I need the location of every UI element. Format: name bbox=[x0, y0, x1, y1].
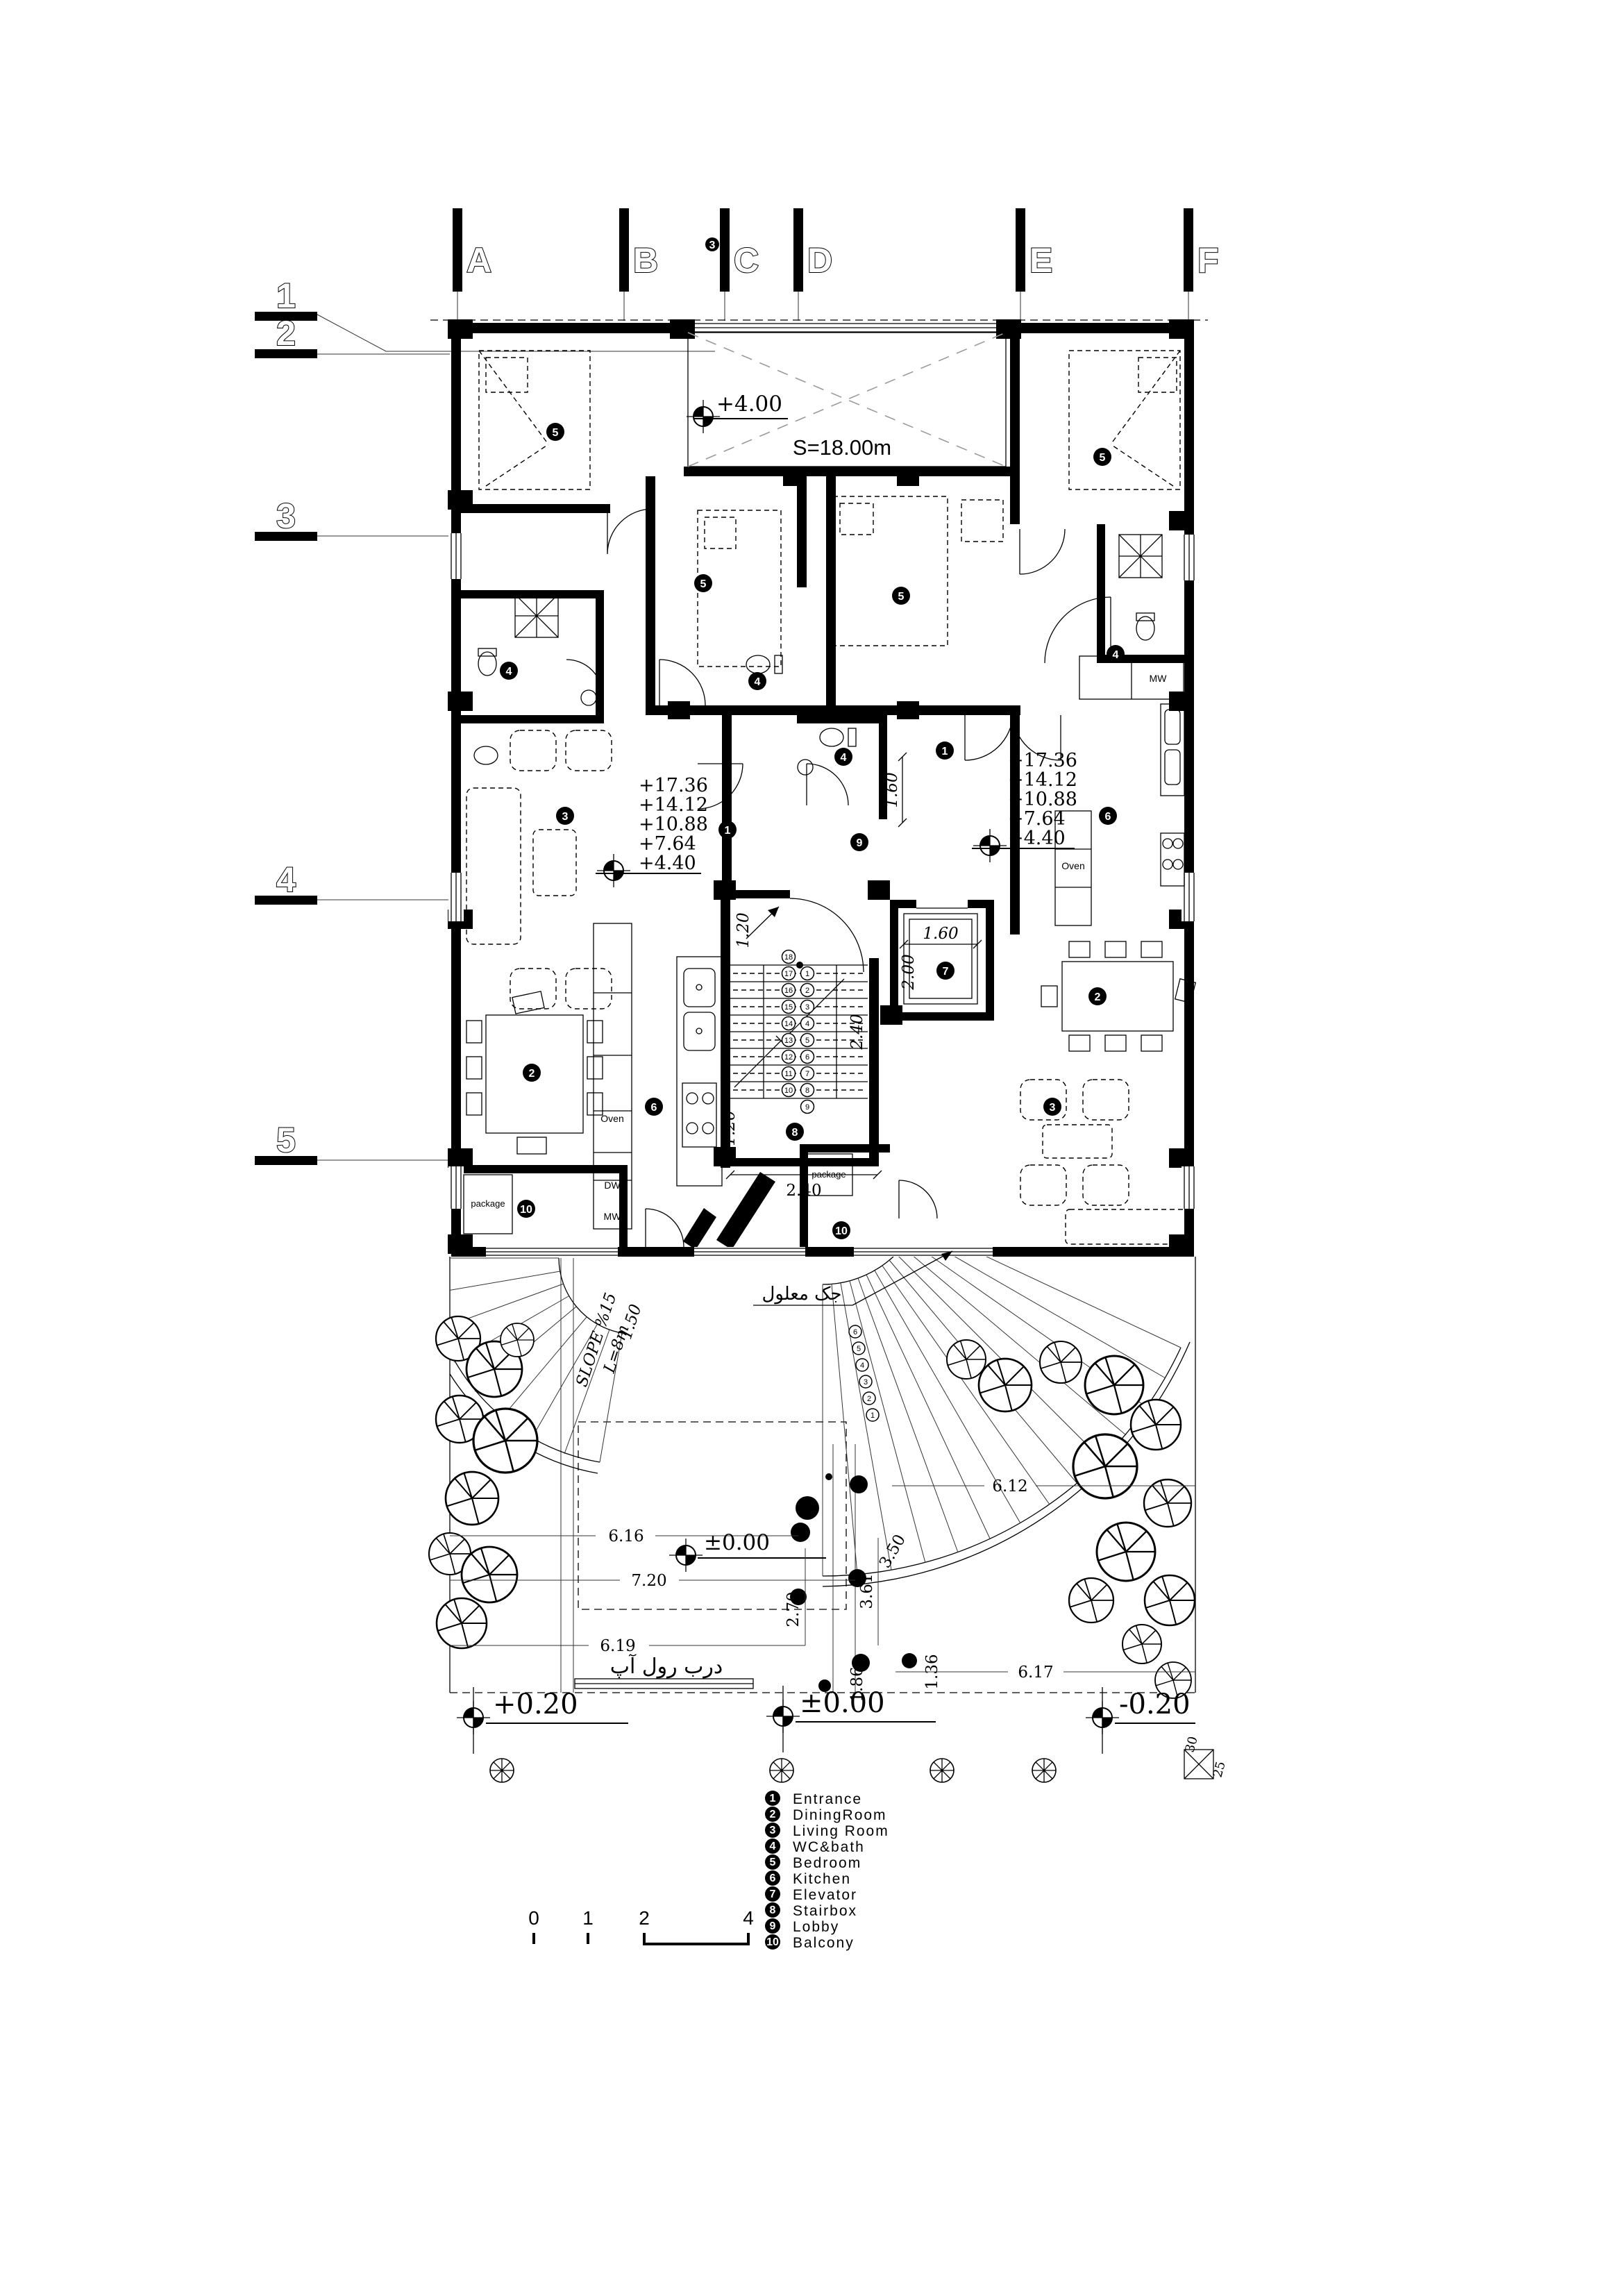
building-walls bbox=[430, 319, 1208, 1257]
ground-left-text: +0.20 bbox=[493, 1689, 578, 1720]
svg-text:2: 2 bbox=[805, 987, 809, 995]
svg-text:9: 9 bbox=[857, 837, 863, 849]
elevation-stack-right: +17.36 +14.12 +10.88 +7.64 +4.40 bbox=[972, 750, 1077, 862]
scale-4: 4 bbox=[743, 1907, 754, 1929]
grid-col-f: F bbox=[1197, 241, 1219, 280]
svg-text:+14.12: +14.12 bbox=[1008, 769, 1077, 791]
svg-text:DiningRoom: DiningRoom bbox=[793, 1807, 887, 1823]
oven-label-right: Oven bbox=[1061, 860, 1084, 871]
svg-text:1: 1 bbox=[805, 970, 809, 978]
elevation-stack-left: +17.36 +14.12 +10.88 +7.64 +4.40 bbox=[596, 775, 708, 887]
dim-site-e: 3.61 bbox=[858, 1573, 876, 1609]
dining-tables bbox=[466, 941, 1195, 1154]
svg-text:5: 5 bbox=[857, 1345, 861, 1353]
site: SLOPE %15 L=8m 1.50 6 5 4 3 2 1 جک معلول bbox=[417, 1224, 1195, 1702]
mw-label: MW bbox=[604, 1211, 622, 1222]
svg-text:Stairbox: Stairbox bbox=[793, 1903, 857, 1919]
void-area-text: S=18.00m bbox=[793, 435, 891, 460]
svg-text:4: 4 bbox=[860, 1361, 864, 1370]
svg-text:4: 4 bbox=[755, 676, 761, 688]
ground-center-text: ±0.00 bbox=[800, 1687, 885, 1719]
svg-text:WC&bath: WC&bath bbox=[793, 1839, 865, 1855]
svg-text:5: 5 bbox=[553, 427, 559, 439]
dim-elevator-width: 1.60 bbox=[923, 925, 958, 943]
legend-item: 7 Elevator bbox=[765, 1886, 857, 1903]
scale-1: 1 bbox=[582, 1907, 594, 1929]
svg-text:1: 1 bbox=[770, 1793, 776, 1804]
grid-row-1: 1 bbox=[276, 276, 296, 315]
svg-text:3: 3 bbox=[562, 811, 569, 823]
svg-text:3: 3 bbox=[805, 1003, 809, 1012]
benchmark-icon bbox=[766, 1700, 800, 1733]
svg-text:7: 7 bbox=[770, 1888, 776, 1900]
benchmark-icon bbox=[669, 1539, 703, 1572]
window-symbols bbox=[448, 324, 1197, 1257]
package-label-left: package bbox=[471, 1198, 505, 1209]
svg-text:3: 3 bbox=[709, 240, 716, 251]
legend-item: 4 WC&bath bbox=[765, 1838, 865, 1855]
benchmark-icon bbox=[457, 1701, 490, 1734]
svg-text:+4.40: +4.40 bbox=[1008, 828, 1066, 849]
mw-label-right: MW bbox=[1150, 673, 1168, 684]
column-depth-label: 25 bbox=[1211, 1760, 1229, 1779]
grid-row-3: 3 bbox=[276, 496, 296, 535]
svg-text:10: 10 bbox=[835, 1225, 848, 1237]
dim-stair-right: 2.40 bbox=[848, 1014, 866, 1050]
dim-hall: 1.60 bbox=[883, 772, 901, 807]
rollup-door-label: درب رول آپ bbox=[610, 1654, 723, 1679]
legend-item: 5 Bedroom bbox=[765, 1854, 861, 1871]
grid-columns: A B C D E F 3 bbox=[453, 208, 1219, 321]
column-key: 30 25 bbox=[1183, 1735, 1229, 1779]
svg-text:14: 14 bbox=[784, 1020, 793, 1028]
svg-text:2: 2 bbox=[1095, 991, 1101, 1003]
legend: 1 Entrance 2 DiningRoom 3 Living Room 4 … bbox=[765, 1791, 889, 1951]
svg-text:4: 4 bbox=[770, 1841, 776, 1852]
svg-text:Bedroom: Bedroom bbox=[793, 1855, 861, 1871]
bathrooms bbox=[474, 535, 1162, 775]
datum-wheels bbox=[490, 1759, 1056, 1782]
lightwell-void: +4.00 S=18.00m bbox=[687, 333, 1006, 467]
svg-text:3: 3 bbox=[1050, 1102, 1056, 1114]
ground-right-text: -0.20 bbox=[1119, 1689, 1191, 1720]
oven-label: Oven bbox=[600, 1113, 623, 1124]
dim-site-k: 1.50 bbox=[617, 1302, 646, 1341]
dim-elevator-depth: 2.00 bbox=[900, 954, 918, 990]
svg-text:8: 8 bbox=[770, 1904, 776, 1916]
svg-text:10: 10 bbox=[784, 1087, 793, 1095]
svg-text:+14.12: +14.12 bbox=[639, 794, 708, 816]
benchmark-icon bbox=[687, 400, 720, 433]
legend-item: 10 Balcony bbox=[765, 1934, 855, 1951]
svg-text:17: 17 bbox=[784, 970, 793, 978]
benchmark-icon bbox=[1086, 1701, 1119, 1734]
svg-text:+17.36: +17.36 bbox=[1008, 750, 1077, 771]
svg-text:+17.36: +17.36 bbox=[639, 775, 708, 796]
scale-0: 0 bbox=[528, 1907, 539, 1929]
legend-item: 1 Entrance bbox=[765, 1791, 862, 1807]
dim-stair-bottom: 2.40 bbox=[786, 1182, 821, 1200]
svg-text:4: 4 bbox=[805, 1020, 809, 1028]
grid-col-c: C bbox=[734, 241, 759, 280]
svg-text:13: 13 bbox=[784, 1037, 793, 1045]
scale-bar: 0 1 2 4 bbox=[528, 1907, 754, 1944]
svg-text:2: 2 bbox=[529, 1068, 535, 1080]
svg-text:9: 9 bbox=[805, 1103, 809, 1112]
svg-text:Kitchen: Kitchen bbox=[793, 1871, 851, 1887]
legend-item: 2 DiningRoom bbox=[765, 1807, 887, 1823]
svg-text:8: 8 bbox=[792, 1127, 798, 1139]
svg-text:6: 6 bbox=[805, 1053, 809, 1062]
dim-site-b: 7.20 bbox=[631, 1572, 666, 1590]
svg-text:4: 4 bbox=[841, 752, 847, 764]
grid-col-e: E bbox=[1029, 241, 1052, 280]
svg-text:5: 5 bbox=[700, 578, 707, 590]
svg-text:4: 4 bbox=[1113, 649, 1119, 661]
legend-item: 8 Stairbox bbox=[765, 1902, 857, 1919]
package-label-right: package bbox=[811, 1169, 846, 1180]
svg-text:Balcony: Balcony bbox=[793, 1935, 855, 1951]
svg-text:+7.64: +7.64 bbox=[1008, 808, 1066, 830]
svg-text:18: 18 bbox=[784, 953, 793, 962]
svg-text:10: 10 bbox=[520, 1204, 532, 1216]
site-zero-text: ±0.00 bbox=[704, 1530, 770, 1555]
svg-text:3: 3 bbox=[770, 1825, 776, 1836]
dw-label: DW bbox=[604, 1180, 621, 1191]
svg-text:7: 7 bbox=[805, 1070, 809, 1078]
svg-text:2: 2 bbox=[770, 1809, 776, 1820]
ground-level-marks: +0.20 ±0.00 -0.20 bbox=[457, 1686, 1195, 1754]
svg-text:3: 3 bbox=[864, 1378, 868, 1386]
svg-text:7: 7 bbox=[943, 966, 949, 978]
svg-text:2: 2 bbox=[867, 1395, 871, 1403]
rollup-door: درب رول آپ bbox=[575, 1654, 753, 1689]
kitchen-left: Oven DW MW bbox=[594, 923, 722, 1229]
dim-stair-left: 1.20 bbox=[721, 1110, 739, 1146]
floor-plan-drawing: A B C D E F 3 1 2 3 4 5 +4 bbox=[0, 0, 1623, 2296]
legend-item: 9 Lobby bbox=[765, 1918, 839, 1935]
svg-text:Lobby: Lobby bbox=[793, 1919, 839, 1935]
svg-text:Entrance: Entrance bbox=[793, 1791, 862, 1807]
svg-text:5: 5 bbox=[898, 591, 905, 603]
svg-text:10: 10 bbox=[766, 1936, 779, 1948]
handicap-jack-note: جک معلول bbox=[753, 1251, 952, 1305]
benchmark-icon bbox=[597, 854, 630, 887]
svg-text:+4.40: +4.40 bbox=[639, 853, 696, 874]
benchmark-icon bbox=[973, 829, 1007, 862]
svg-text:1: 1 bbox=[725, 825, 731, 837]
dim-stair-top: 1.20 bbox=[734, 912, 752, 948]
svg-text:5: 5 bbox=[805, 1037, 809, 1045]
svg-text:5: 5 bbox=[770, 1857, 776, 1868]
dim-site-i: 6.12 bbox=[992, 1477, 1027, 1495]
column-width-label: 30 bbox=[1183, 1735, 1201, 1754]
grid-col-b: B bbox=[633, 241, 658, 280]
legend-item: 3 Living Room bbox=[765, 1822, 889, 1839]
svg-text:5: 5 bbox=[1100, 452, 1106, 464]
dim-site-c: 6.19 bbox=[600, 1637, 635, 1655]
bollards bbox=[790, 1473, 917, 1692]
grid-row-5: 5 bbox=[276, 1121, 296, 1159]
dim-site-d: 2.70 bbox=[784, 1591, 802, 1627]
svg-text:16: 16 bbox=[784, 987, 793, 995]
svg-text:15: 15 bbox=[784, 1003, 793, 1012]
grid-row-2: 2 bbox=[276, 314, 296, 353]
dim-site-h: 3.50 bbox=[876, 1532, 909, 1571]
svg-text:6: 6 bbox=[853, 1328, 857, 1336]
svg-text:1: 1 bbox=[942, 746, 948, 757]
grid-row-4: 4 bbox=[276, 860, 296, 899]
svg-text:12: 12 bbox=[784, 1053, 793, 1062]
svg-text:11: 11 bbox=[784, 1070, 792, 1078]
svg-text:+7.64: +7.64 bbox=[639, 833, 696, 855]
svg-text:جک معلول: جک معلول bbox=[762, 1284, 841, 1305]
svg-text:8: 8 bbox=[805, 1087, 809, 1095]
svg-text:9: 9 bbox=[770, 1920, 776, 1932]
svg-text:+10.88: +10.88 bbox=[639, 814, 708, 835]
svg-text:Elevator: Elevator bbox=[793, 1887, 857, 1903]
grid-col-d: D bbox=[807, 241, 832, 280]
grid-col-a: A bbox=[466, 241, 491, 280]
dim-site-a: 6.16 bbox=[608, 1527, 644, 1545]
svg-text:6: 6 bbox=[1105, 811, 1111, 823]
void-level-text: +4.00 bbox=[716, 392, 782, 417]
scale-2: 2 bbox=[639, 1907, 650, 1929]
floor-plan-sheet: A B C D E F 3 1 2 3 4 5 +4 bbox=[0, 0, 1623, 2296]
dim-site-j: 6.17 bbox=[1018, 1664, 1053, 1682]
svg-text:6: 6 bbox=[770, 1872, 776, 1884]
svg-text:6: 6 bbox=[651, 1102, 657, 1114]
svg-text:+10.88: +10.88 bbox=[1008, 789, 1077, 810]
svg-text:Living Room: Living Room bbox=[793, 1823, 889, 1839]
svg-text:4: 4 bbox=[506, 666, 512, 678]
legend-item: 6 Kitchen bbox=[765, 1870, 851, 1887]
svg-text:1: 1 bbox=[871, 1411, 875, 1420]
